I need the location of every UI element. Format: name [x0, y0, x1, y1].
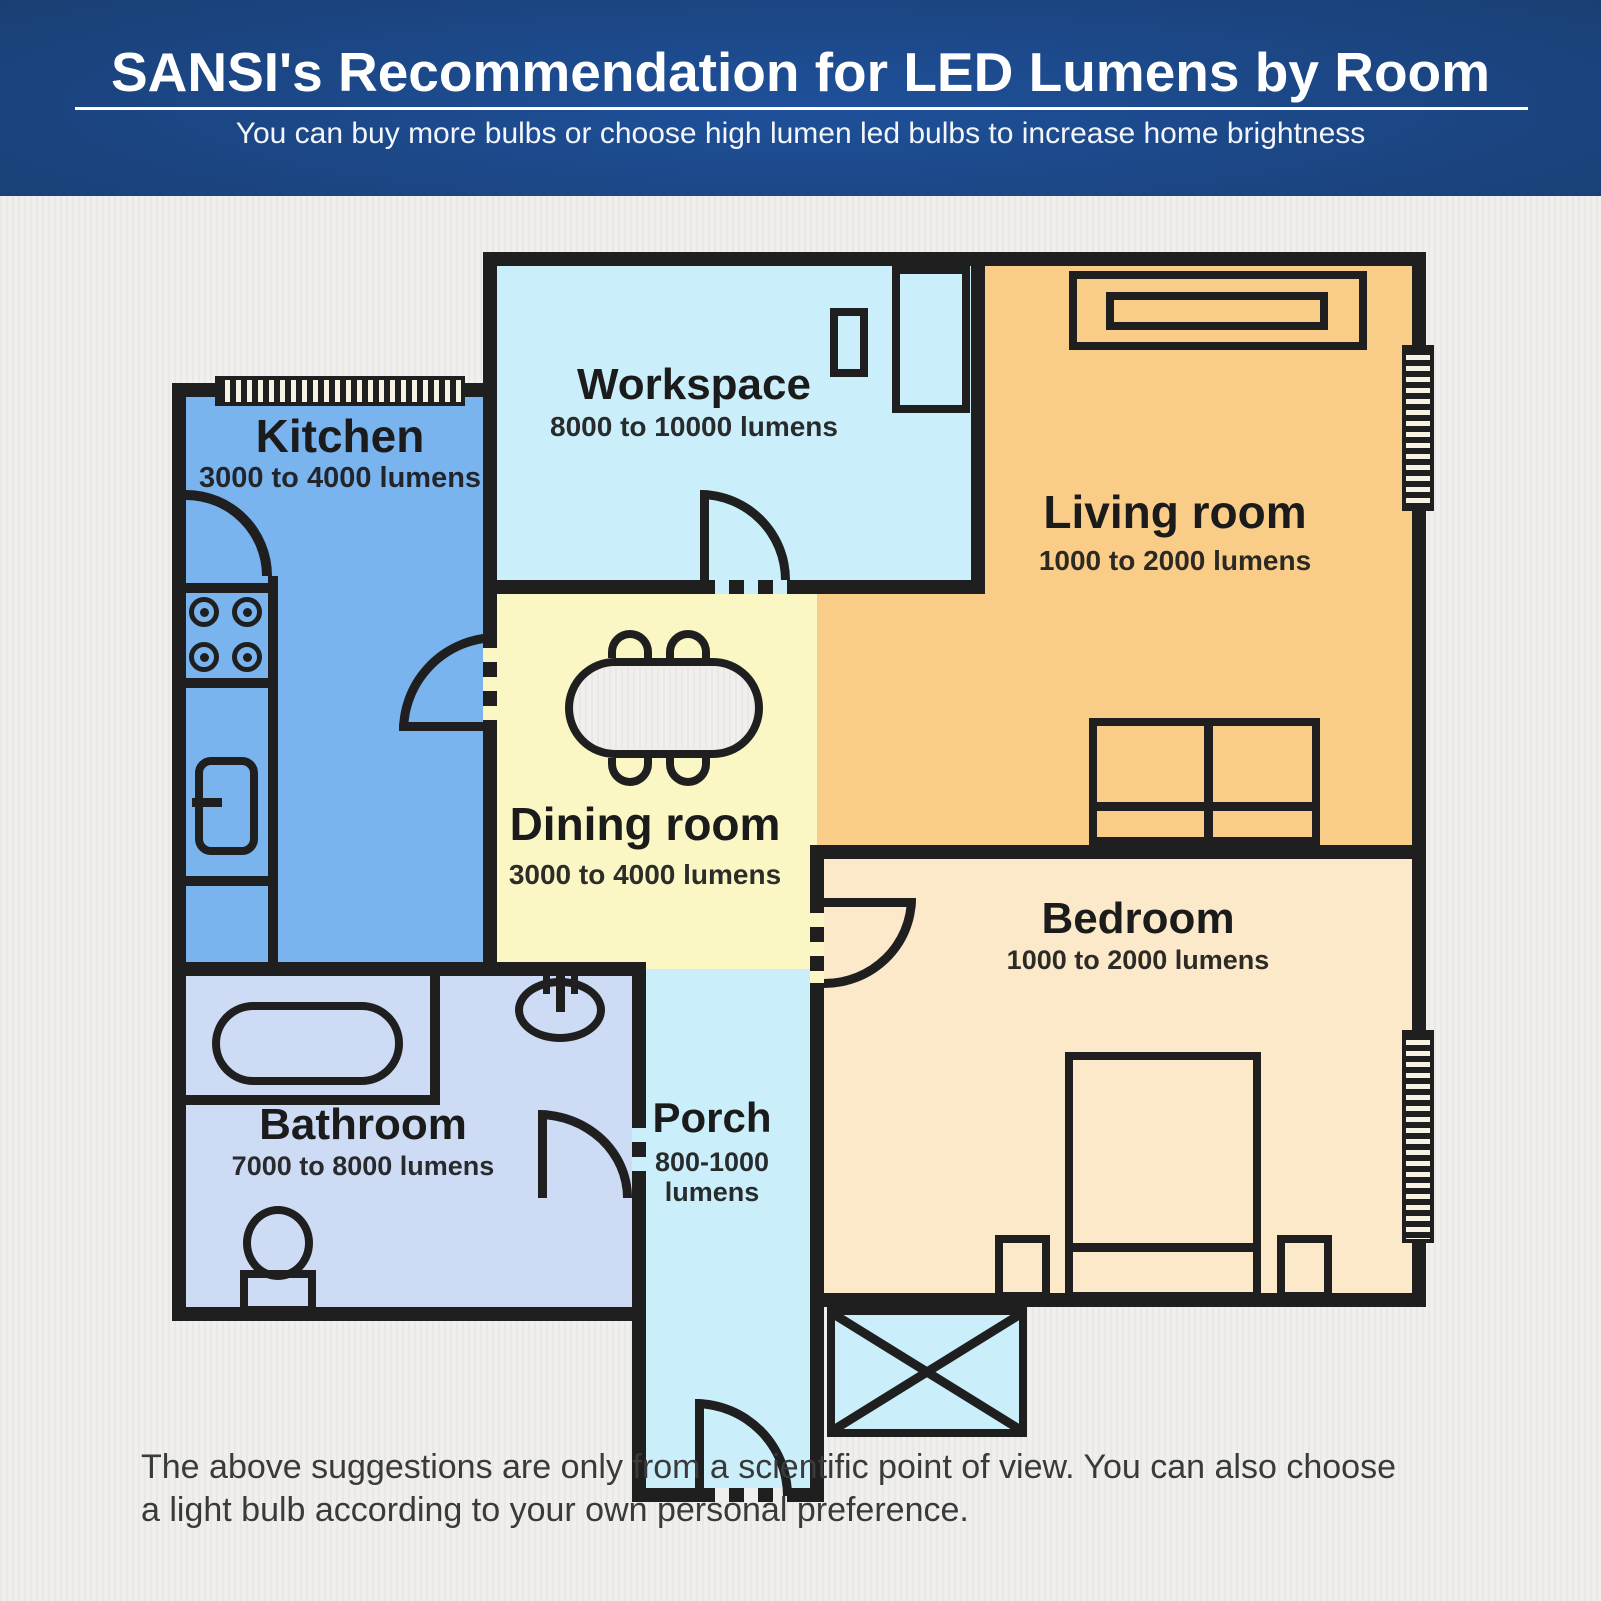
wall-workspace-bottom-left — [497, 580, 700, 594]
wall-porch-left-upper — [632, 962, 646, 1113]
wall-kitchen-right-upper — [483, 252, 497, 633]
kitchen-counter-divider — [186, 876, 272, 886]
stove-burner-icon — [189, 597, 219, 627]
room-lumens: 1000 to 2000 lumens — [1039, 546, 1311, 575]
living-room-area-extension — [817, 587, 978, 852]
opening-bathroom-porch — [632, 1113, 646, 1183]
bed-icon — [1065, 1052, 1261, 1300]
room-name: Bathroom — [232, 1102, 495, 1148]
kitchen-counter-divider — [186, 583, 272, 593]
room-name: Porch — [652, 1096, 771, 1140]
footer-line-2: a light bulb according to your own perso… — [141, 1489, 1396, 1532]
footer-note: The above suggestions are only from a sc… — [141, 1446, 1396, 1532]
room-name: Dining room — [509, 800, 781, 848]
room-lumens: 1000 to 2000 lumens — [1007, 946, 1270, 974]
sofa-icon — [1089, 718, 1320, 845]
footer-line-1: The above suggestions are only from a sc… — [141, 1446, 1396, 1489]
stove-burner-icon — [232, 597, 262, 627]
nightstand-icon — [995, 1235, 1050, 1300]
kitchen-counter-edge — [268, 576, 278, 962]
stove-burner-center — [200, 608, 209, 617]
x-cross-icon — [835, 1315, 1019, 1429]
dining-table-icon — [565, 658, 763, 758]
window-living-icon — [1402, 345, 1434, 511]
room-lumens: 3000 to 4000 lumens — [199, 463, 481, 493]
wall-workspace-bottom-right — [790, 580, 985, 594]
wall-outer-top — [497, 252, 1426, 266]
label-bathroom: Bathroom 7000 to 8000 lumens — [232, 1102, 495, 1181]
wall-living-bedroom — [810, 845, 1426, 859]
room-lumens: lumens — [652, 1178, 771, 1206]
stove-burner-center — [200, 653, 209, 662]
page-subtitle: You can buy more bulbs or choose high lu… — [236, 117, 1366, 151]
wall-outer-left — [172, 383, 186, 1321]
room-lumens: 8000 to 10000 lumens — [550, 412, 838, 441]
header-banner: SANSI's Recommendation for LED Lumens by… — [0, 0, 1601, 196]
wall-kitchen-right-lower — [483, 731, 497, 962]
infographic-canvas: SANSI's Recommendation for LED Lumens by… — [0, 0, 1601, 1601]
opening-bedroom — [810, 898, 824, 983]
window-kitchen-icon — [215, 376, 465, 406]
header-divider-line — [75, 107, 1528, 110]
window-bedroom-icon — [1402, 1030, 1434, 1243]
sofa-seat-divider — [1204, 726, 1213, 837]
page-title: SANSI's Recommendation for LED Lumens by… — [111, 40, 1490, 104]
label-living-room: Living room 1000 to 2000 lumens — [1039, 488, 1311, 576]
stove-burner-icon — [232, 642, 262, 672]
wall-workspace-right — [971, 252, 985, 594]
label-bedroom: Bedroom 1000 to 2000 lumens — [1007, 896, 1270, 975]
fridge-handle — [192, 798, 222, 807]
bathtub-alcove-wall-vertical — [430, 976, 440, 1105]
label-dining-room: Dining room 3000 to 4000 lumens — [509, 800, 781, 890]
label-kitchen: Kitchen 3000 to 4000 lumens — [199, 412, 481, 494]
faucet-icon — [556, 972, 565, 1012]
dining-room-area — [490, 587, 817, 969]
room-name: Bedroom — [1007, 896, 1270, 942]
toilet-bowl-icon — [243, 1206, 313, 1280]
sofa-back-divider — [1097, 802, 1312, 811]
wall-bedroom-left-lower — [810, 983, 824, 1502]
stove-burner-icon — [189, 642, 219, 672]
label-workspace: Workspace 8000 to 10000 lumens — [550, 362, 838, 442]
stove-burner-center — [243, 653, 252, 662]
room-name: Kitchen — [199, 412, 481, 460]
nightstand-icon — [1277, 1235, 1332, 1300]
wall-bathroom-bottom — [172, 1307, 646, 1321]
room-name: Workspace — [550, 362, 838, 408]
bed-footboard-line — [1073, 1243, 1253, 1252]
wall-bedroom-bottom — [810, 1293, 1426, 1307]
tv-screen-icon — [1106, 292, 1328, 330]
room-lumens: 3000 to 4000 lumens — [509, 860, 781, 889]
desk-icon — [892, 266, 970, 413]
kitchen-counter-divider — [186, 678, 272, 688]
label-porch: Porch 800-1000 lumens — [652, 1096, 771, 1207]
room-name: Living room — [1039, 488, 1311, 536]
room-lumens: 800-1000 — [652, 1148, 771, 1176]
porch-steps-marker — [827, 1307, 1027, 1437]
room-lumens: 7000 to 8000 lumens — [232, 1152, 495, 1180]
bathtub-icon — [212, 1002, 403, 1085]
wall-bathroom-top — [172, 962, 646, 976]
stove-burner-center — [243, 608, 252, 617]
opening-workspace-dining — [700, 580, 790, 594]
